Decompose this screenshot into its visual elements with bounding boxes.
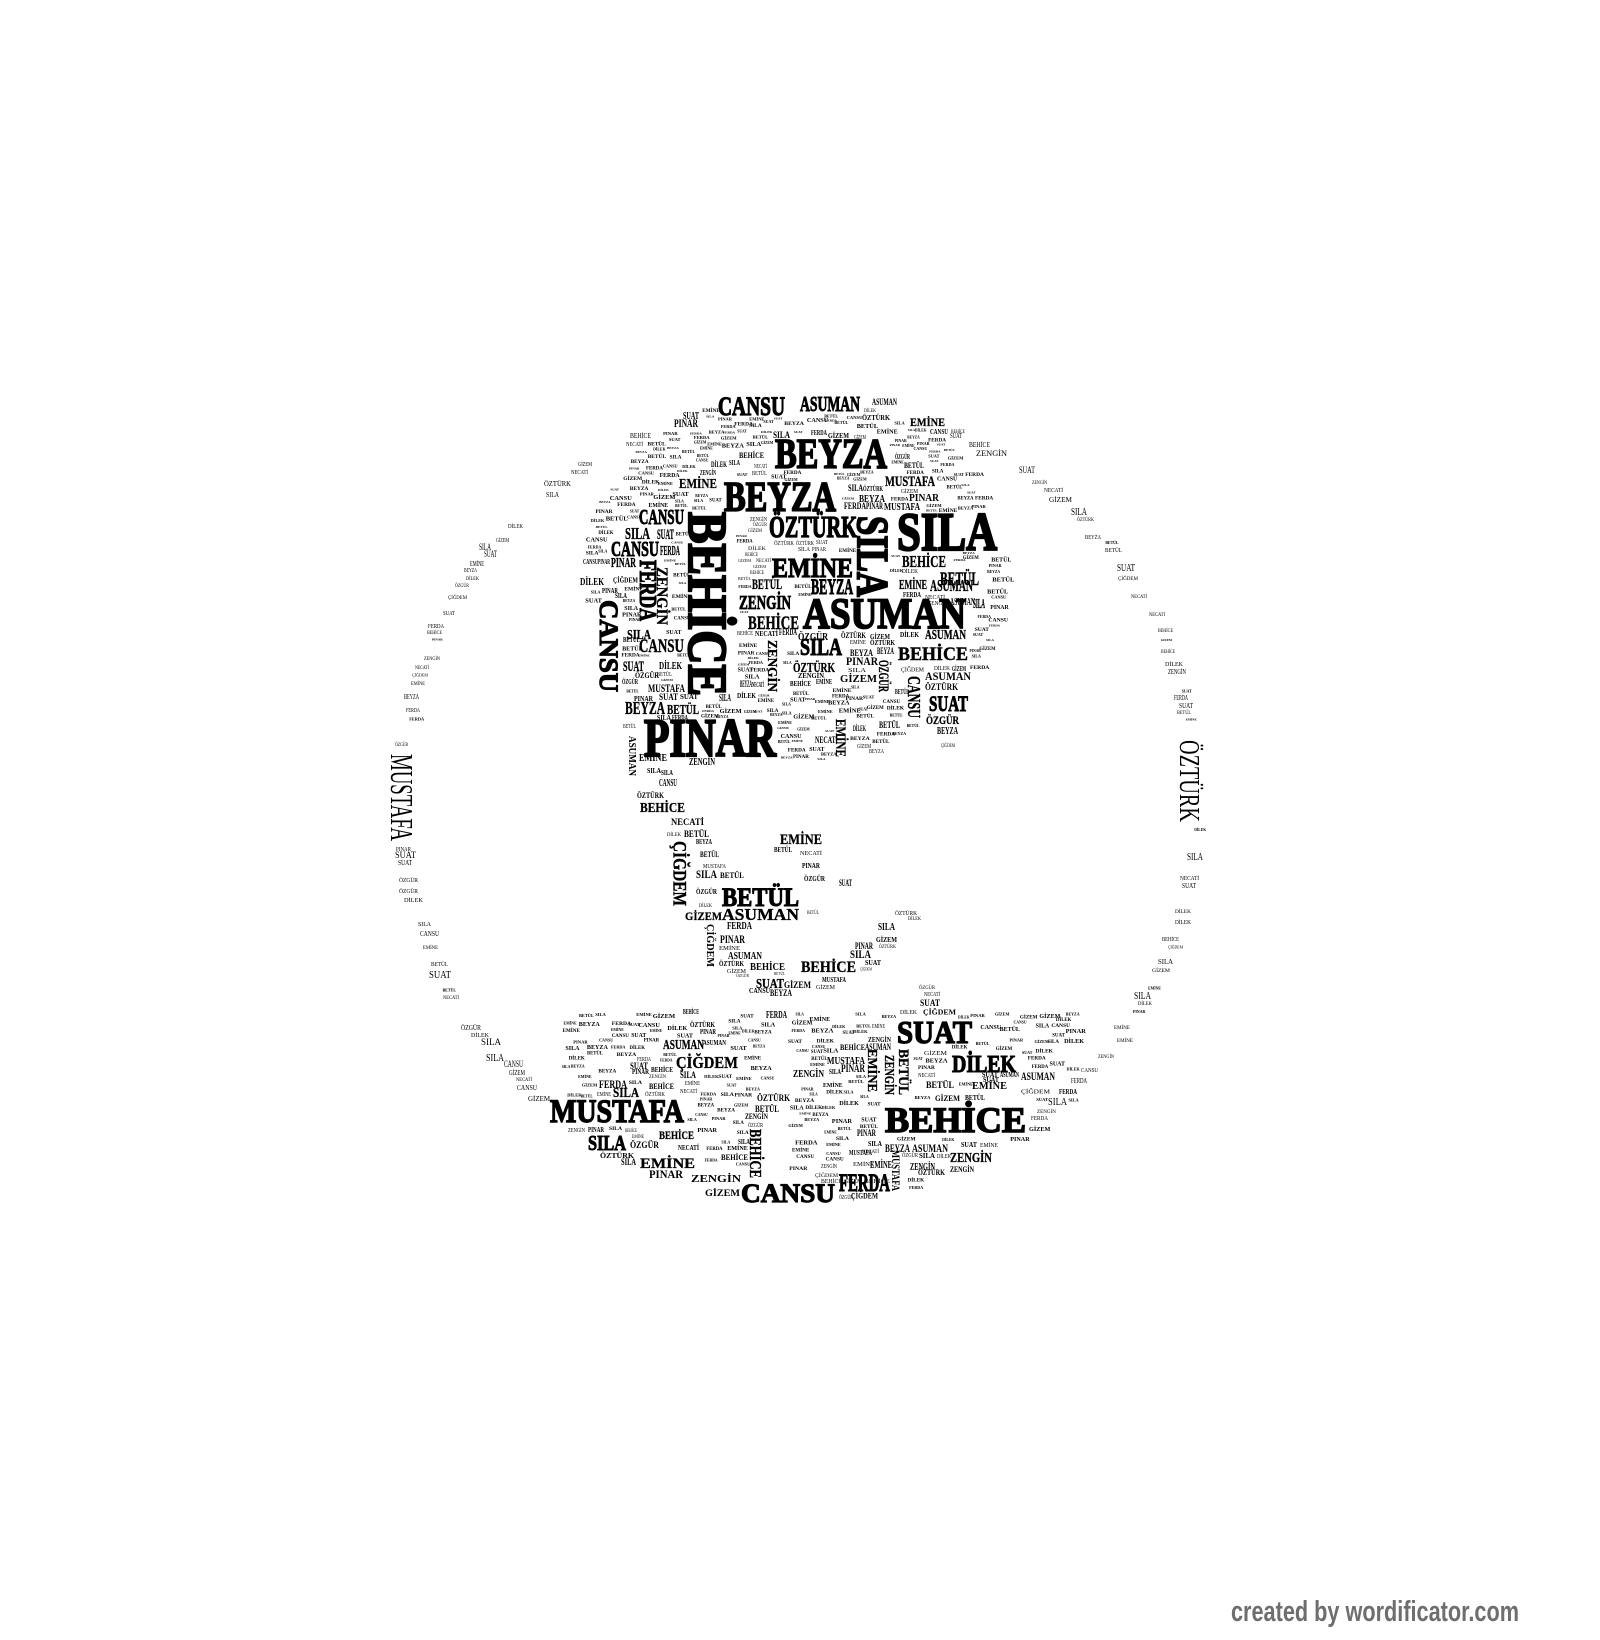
svg-text:SILA: SILA bbox=[844, 1090, 855, 1095]
svg-text:MUSTAFA: MUSTAFA bbox=[384, 754, 419, 841]
svg-text:ZENGİN: ZENGİN bbox=[950, 1150, 992, 1165]
svg-text:SILA: SILA bbox=[732, 1026, 743, 1031]
svg-text:SILA: SILA bbox=[680, 1070, 696, 1080]
svg-text:SUAT: SUAT bbox=[868, 1103, 882, 1108]
svg-text:BEYZA: BEYZA bbox=[885, 1141, 910, 1155]
svg-text:PINAR: PINAR bbox=[1133, 1010, 1146, 1014]
svg-text:SUAT: SUAT bbox=[920, 998, 940, 1008]
svg-text:ASUMAN: ASUMAN bbox=[626, 736, 637, 776]
svg-text:DİLEK: DİLEK bbox=[630, 1045, 646, 1051]
svg-text:FERDA: FERDA bbox=[721, 424, 737, 429]
svg-text:ÇİĞDEM: ÇİĞDEM bbox=[704, 924, 717, 967]
svg-text:BEYZA: BEYZA bbox=[754, 1031, 772, 1036]
svg-text:CANSU: CANSU bbox=[504, 1059, 523, 1069]
svg-text:CANSU: CANSU bbox=[1051, 1023, 1070, 1029]
svg-text:ÖZGÜR: ÖZGÜR bbox=[399, 877, 418, 884]
svg-text:FERDA: FERDA bbox=[660, 1059, 673, 1063]
svg-text:SUAT: SUAT bbox=[398, 858, 412, 867]
svg-text:DİLEK: DİLEK bbox=[805, 1104, 822, 1111]
svg-text:ÖZGÜR: ÖZGÜR bbox=[455, 583, 470, 589]
svg-text:BEYZA: BEYZA bbox=[869, 749, 885, 755]
svg-text:CANSU: CANSU bbox=[904, 676, 924, 718]
svg-text:CANSU: CANSU bbox=[586, 536, 608, 543]
svg-text:EMİNE: EMİNE bbox=[815, 699, 830, 704]
svg-text:FERDA: FERDA bbox=[792, 1029, 806, 1033]
svg-text:FERDA: FERDA bbox=[788, 748, 806, 754]
svg-text:DİLEK: DİLEK bbox=[839, 1100, 859, 1107]
svg-text:BETÜL: BETÜL bbox=[879, 718, 900, 731]
svg-text:SUAT: SUAT bbox=[1019, 465, 1035, 475]
svg-text:EMİNE: EMİNE bbox=[664, 557, 677, 562]
svg-text:SUAT: SUAT bbox=[1182, 881, 1196, 890]
svg-text:SILA: SILA bbox=[591, 589, 601, 594]
svg-text:DİLEK: DİLEK bbox=[667, 832, 682, 838]
svg-text:GİZEM: GİZEM bbox=[758, 692, 769, 697]
svg-text:ÖZTÜRK: ÖZTÜRK bbox=[841, 630, 866, 640]
svg-text:BETÜL: BETÜL bbox=[1105, 540, 1119, 545]
svg-text:DİLEK: DİLEK bbox=[1138, 1001, 1153, 1007]
svg-text:GİZEM: GİZEM bbox=[948, 455, 964, 460]
svg-text:EMİNE: EMİNE bbox=[1117, 1038, 1133, 1044]
svg-text:GİZEM: GİZEM bbox=[816, 984, 836, 991]
svg-text:CANSU: CANSU bbox=[639, 636, 684, 657]
svg-text:BETÜL: BETÜL bbox=[838, 1126, 852, 1131]
svg-text:CANSU: CANSU bbox=[826, 1151, 840, 1156]
svg-text:FERDA: FERDA bbox=[1071, 1076, 1087, 1085]
svg-text:PINAR: PINAR bbox=[663, 431, 678, 436]
svg-text:DİLEK: DİLEK bbox=[658, 487, 669, 492]
svg-text:SILA: SILA bbox=[790, 1105, 804, 1111]
svg-text:SILA: SILA bbox=[986, 638, 994, 642]
svg-text:SILA: SILA bbox=[855, 1012, 866, 1017]
svg-text:GİZEM: GİZEM bbox=[1161, 637, 1173, 642]
svg-text:BEYZA: BEYZA bbox=[781, 755, 793, 759]
svg-text:DİLEK: DİLEK bbox=[404, 897, 424, 904]
svg-text:ÖZTÜRK: ÖZTÜRK bbox=[757, 1091, 790, 1104]
svg-text:SUAT: SUAT bbox=[961, 1140, 977, 1149]
svg-text:SILA: SILA bbox=[800, 635, 843, 661]
svg-text:created by wordificator.com: created by wordificator.com bbox=[1231, 1596, 1519, 1628]
svg-text:SILA: SILA bbox=[848, 483, 863, 493]
svg-text:SILA: SILA bbox=[1071, 507, 1087, 518]
svg-text:GİZEM: GİZEM bbox=[653, 494, 675, 501]
svg-text:DİLEK: DİLEK bbox=[1175, 919, 1192, 926]
svg-text:BETÜL: BETÜL bbox=[774, 845, 792, 854]
svg-text:BEYZA: BEYZA bbox=[770, 988, 792, 998]
svg-text:EMİNE: EMİNE bbox=[632, 1134, 644, 1140]
svg-text:EMİNE: EMİNE bbox=[736, 1076, 752, 1081]
svg-text:GİZEM: GİZEM bbox=[748, 528, 763, 534]
svg-text:BEYZA: BEYZA bbox=[630, 486, 649, 492]
svg-text:SUAT: SUAT bbox=[738, 667, 754, 673]
svg-text:BETÜL: BETÜL bbox=[807, 910, 819, 916]
svg-text:BETÜL: BETÜL bbox=[700, 849, 719, 859]
svg-text:PINAR: PINAR bbox=[700, 1097, 713, 1101]
svg-text:EMİNE: EMİNE bbox=[810, 1062, 825, 1067]
svg-text:SILA: SILA bbox=[728, 1018, 740, 1024]
svg-text:EMİNE: EMİNE bbox=[1114, 1025, 1130, 1031]
svg-text:GİZEM: GİZEM bbox=[1152, 968, 1171, 974]
svg-text:FERDA: FERDA bbox=[779, 627, 797, 637]
svg-text:BEYZA: BEYZA bbox=[636, 450, 648, 454]
svg-text:DİLEK: DİLEK bbox=[591, 518, 605, 523]
svg-text:NECATİ: NECATİ bbox=[678, 1142, 699, 1152]
svg-text:GİZEM: GİZEM bbox=[528, 1094, 551, 1103]
svg-text:EMİNE: EMİNE bbox=[810, 1016, 831, 1023]
svg-text:ÖZTÜRK: ÖZTÜRK bbox=[769, 510, 857, 544]
svg-text:BEHİCE: BEHİCE bbox=[898, 644, 968, 665]
svg-text:SUAT: SUAT bbox=[897, 1015, 972, 1050]
svg-text:EMİNE: EMİNE bbox=[959, 1081, 973, 1086]
svg-text:BEYZA: BEYZA bbox=[795, 1098, 814, 1104]
svg-text:SILA: SILA bbox=[973, 596, 985, 611]
svg-text:BETÜL: BETÜL bbox=[992, 577, 1015, 584]
svg-text:FERDA: FERDA bbox=[723, 431, 736, 435]
svg-text:DİLEK: DİLEK bbox=[508, 523, 524, 530]
svg-text:BEHİCE: BEHİCE bbox=[640, 800, 685, 815]
svg-text:DİLEK: DİLEK bbox=[853, 1029, 868, 1034]
svg-text:CANSU: CANSU bbox=[796, 1154, 814, 1160]
svg-text:BETÜL: BETÜL bbox=[811, 715, 826, 720]
svg-text:CANSU: CANSU bbox=[583, 557, 598, 566]
svg-text:CANSU: CANSU bbox=[781, 734, 803, 740]
svg-text:ÖZGÜR: ÖZGÜR bbox=[399, 888, 418, 895]
svg-text:DİLEK: DİLEK bbox=[466, 576, 479, 582]
svg-text:EMİNE: EMİNE bbox=[636, 1012, 652, 1017]
svg-text:SILA: SILA bbox=[796, 1013, 805, 1017]
svg-text:GİZEM: GİZEM bbox=[685, 909, 723, 923]
svg-text:PINAR: PINAR bbox=[989, 563, 1002, 568]
svg-text:EMİNE: EMİNE bbox=[564, 1021, 578, 1026]
svg-text:GİZEM: GİZEM bbox=[721, 436, 737, 441]
svg-text:DİLEK: DİLEK bbox=[1175, 909, 1192, 915]
svg-text:BETÜL: BETÜL bbox=[720, 870, 744, 880]
svg-text:ZENGİN: ZENGİN bbox=[765, 640, 780, 692]
svg-text:ÖZGÜR: ÖZGÜR bbox=[753, 522, 768, 528]
svg-text:SILA: SILA bbox=[848, 516, 898, 597]
svg-text:DİLEK: DİLEK bbox=[826, 1089, 843, 1096]
svg-text:BETÜL: BETÜL bbox=[697, 453, 710, 458]
svg-text:PINAR: PINAR bbox=[970, 1013, 985, 1018]
svg-text:SILA: SILA bbox=[621, 1157, 636, 1167]
svg-text:BETÜL: BETÜL bbox=[811, 1056, 827, 1062]
svg-text:EMİNE: EMİNE bbox=[563, 1027, 581, 1034]
svg-text:SILA: SILA bbox=[961, 483, 970, 487]
svg-text:SUAT: SUAT bbox=[973, 632, 984, 637]
svg-text:SILA: SILA bbox=[729, 458, 740, 467]
svg-text:DİLEK: DİLEK bbox=[832, 1024, 846, 1029]
svg-text:BETÜL: BETÜL bbox=[794, 583, 812, 590]
svg-text:BETÜL: BETÜL bbox=[752, 576, 782, 593]
svg-text:FERDA: FERDA bbox=[727, 921, 752, 932]
svg-text:EMİNE: EMİNE bbox=[679, 476, 717, 491]
svg-text:EMİNE: EMİNE bbox=[833, 687, 852, 694]
svg-text:BETÜL: BETÜL bbox=[895, 687, 909, 696]
svg-text:BETÜL: BETÜL bbox=[944, 447, 956, 452]
svg-text:EMİNE: EMİNE bbox=[902, 443, 915, 448]
svg-text:ÖZGÜR: ÖZGÜR bbox=[736, 973, 750, 978]
svg-text:ÇİĞDEM: ÇİĞDEM bbox=[860, 966, 873, 971]
svg-text:ÇİĞDEM: ÇİĞDEM bbox=[448, 595, 468, 601]
svg-text:BEYZA: BEYZA bbox=[907, 435, 920, 439]
svg-text:BEHİCE: BEHİCE bbox=[750, 570, 764, 576]
svg-text:PINAR: PINAR bbox=[432, 638, 443, 642]
svg-text:EMİNE: EMİNE bbox=[778, 720, 792, 725]
svg-text:PINAR: PINAR bbox=[841, 1061, 865, 1075]
svg-text:PINAR: PINAR bbox=[832, 1118, 853, 1125]
svg-text:DİLEK: DİLEK bbox=[817, 1038, 835, 1045]
svg-text:SUAT: SUAT bbox=[863, 694, 875, 699]
svg-text:BETÜL: BETÜL bbox=[976, 1041, 990, 1046]
svg-text:FERDA: FERDA bbox=[1059, 1087, 1077, 1096]
svg-text:NECATİ: NECATİ bbox=[924, 991, 940, 998]
svg-text:CANSU: CANSU bbox=[826, 1157, 844, 1163]
svg-text:BEYZA: BEYZA bbox=[722, 442, 744, 449]
svg-text:PINAR: PINAR bbox=[857, 1128, 876, 1138]
svg-text:EMİNE: EMİNE bbox=[823, 1082, 843, 1089]
svg-text:BEYZA: BEYZA bbox=[599, 500, 611, 504]
svg-text:ÇİĞDEM: ÇİĞDEM bbox=[815, 1171, 838, 1179]
svg-text:ÖZTÜRK: ÖZTÜRK bbox=[637, 790, 664, 800]
svg-text:DİLEK: DİLEK bbox=[569, 1056, 585, 1062]
svg-text:FERDA: FERDA bbox=[825, 419, 837, 423]
svg-text:ÖZGÜR: ÖZGÜR bbox=[926, 713, 959, 727]
svg-text:DİLEK: DİLEK bbox=[682, 464, 696, 469]
svg-text:DİLEK: DİLEK bbox=[580, 576, 604, 588]
svg-text:ÖZGÜR: ÖZGÜR bbox=[875, 660, 892, 692]
svg-text:DİLEK: DİLEK bbox=[653, 446, 666, 451]
svg-text:BEYZA: BEYZA bbox=[775, 432, 887, 478]
svg-text:GİZEM: GİZEM bbox=[797, 727, 810, 732]
svg-text:CANSU: CANSU bbox=[796, 1049, 809, 1053]
svg-text:SILA: SILA bbox=[706, 414, 715, 418]
svg-text:BEHİCE: BEHİCE bbox=[1161, 649, 1175, 655]
svg-text:SUAT: SUAT bbox=[709, 499, 722, 504]
svg-text:PINAR: PINAR bbox=[611, 555, 636, 570]
svg-text:SILA: SILA bbox=[1158, 957, 1174, 966]
svg-text:CANSU: CANSU bbox=[812, 1045, 826, 1049]
svg-text:BEYZA: BEYZA bbox=[957, 497, 974, 502]
svg-text:PINAR: PINAR bbox=[573, 1040, 588, 1045]
svg-text:BETÜL: BETÜL bbox=[1105, 547, 1122, 554]
svg-text:BEYZA: BEYZA bbox=[667, 446, 679, 450]
svg-text:BEHİCE: BEHİCE bbox=[737, 630, 753, 637]
svg-text:PINAR: PINAR bbox=[649, 1167, 683, 1181]
svg-text:SILA: SILA bbox=[721, 1141, 730, 1145]
svg-text:PINAR: PINAR bbox=[697, 1127, 717, 1134]
svg-text:MUSTAFA: MUSTAFA bbox=[550, 1094, 684, 1130]
svg-text:SILA: SILA bbox=[761, 1023, 776, 1029]
svg-text:BEYZA: BEYZA bbox=[1066, 1011, 1080, 1016]
svg-text:PINAR: PINAR bbox=[700, 1027, 716, 1036]
svg-text:PINAR: PINAR bbox=[738, 651, 755, 657]
svg-text:CANSU: CANSU bbox=[930, 427, 948, 436]
svg-text:GİZEM: GİZEM bbox=[761, 440, 774, 445]
svg-text:PINAR: PINAR bbox=[1010, 1038, 1025, 1043]
svg-text:DİLEK: DİLEK bbox=[1067, 1066, 1081, 1071]
svg-text:NECATİ: NECATİ bbox=[1044, 487, 1063, 494]
svg-text:GİZEM: GİZEM bbox=[792, 1019, 813, 1026]
svg-text:BETÜL: BETÜL bbox=[848, 1079, 864, 1084]
svg-text:GİZEM: GİZEM bbox=[840, 673, 877, 685]
svg-text:FERDA: FERDA bbox=[660, 473, 681, 479]
svg-text:SUAT: SUAT bbox=[1117, 563, 1135, 574]
svg-text:PINAR: PINAR bbox=[1066, 1028, 1087, 1035]
svg-text:GİZEM: GİZEM bbox=[1035, 1039, 1049, 1044]
svg-text:BEYZA: BEYZA bbox=[811, 1028, 833, 1035]
svg-text:BEHİCE: BEHİCE bbox=[745, 552, 758, 558]
svg-text:NECATİ: NECATİ bbox=[756, 558, 771, 564]
svg-text:BEYZA: BEYZA bbox=[804, 1117, 820, 1122]
svg-text:SUAT: SUAT bbox=[1036, 1097, 1048, 1102]
svg-text:GİZEM: GİZEM bbox=[734, 1102, 748, 1107]
svg-text:SILA: SILA bbox=[595, 1012, 606, 1017]
svg-text:ÖZTÜRK: ÖZTÜRK bbox=[719, 959, 744, 968]
svg-text:GİZEM: GİZEM bbox=[623, 475, 643, 482]
svg-text:EMİNE: EMİNE bbox=[758, 698, 774, 704]
svg-text:BETÜL: BETÜL bbox=[753, 435, 769, 440]
svg-text:BEHİCE: BEHİCE bbox=[630, 431, 651, 440]
svg-text:BETÜL: BETÜL bbox=[947, 484, 963, 490]
svg-text:PINAR: PINAR bbox=[720, 932, 745, 946]
svg-text:SUAT: SUAT bbox=[1179, 701, 1193, 710]
svg-text:EMİNE: EMİNE bbox=[744, 1056, 762, 1062]
svg-text:SILA: SILA bbox=[738, 1137, 750, 1146]
svg-text:NECATİ: NECATİ bbox=[754, 463, 767, 470]
svg-text:FERDA: FERDA bbox=[940, 462, 954, 467]
svg-text:NECATİ: NECATİ bbox=[571, 469, 588, 476]
svg-text:SILA: SILA bbox=[721, 1092, 735, 1098]
svg-text:BEYZA: BEYZA bbox=[464, 568, 477, 574]
svg-text:CANSU: CANSU bbox=[980, 1025, 1001, 1031]
svg-text:DİLEK: DİLEK bbox=[900, 629, 919, 639]
svg-text:ZENGİN: ZENGİN bbox=[568, 1127, 585, 1134]
svg-text:FERDA: FERDA bbox=[1031, 1116, 1049, 1122]
svg-text:EMİNE: EMİNE bbox=[470, 559, 484, 568]
svg-text:GİZEM: GİZEM bbox=[578, 461, 592, 468]
svg-text:NECATİ: NECATİ bbox=[862, 1149, 879, 1155]
svg-text:BEYZA: BEYZA bbox=[598, 1069, 616, 1075]
svg-text:BETÜL: BETÜL bbox=[606, 516, 629, 523]
svg-text:NECATİ: NECATİ bbox=[443, 995, 459, 1001]
svg-text:FERDA: FERDA bbox=[409, 717, 425, 722]
svg-text:ÖZGÜR: ÖZGÜR bbox=[622, 677, 638, 686]
svg-text:ASUMAN: ASUMAN bbox=[663, 1037, 704, 1052]
svg-text:BETÜL: BETÜL bbox=[443, 988, 457, 993]
svg-text:BEYZA: BEYZA bbox=[751, 1066, 773, 1072]
svg-text:BEYZA: BEYZA bbox=[571, 1063, 585, 1068]
svg-text:MUSTAFA: MUSTAFA bbox=[885, 474, 935, 490]
svg-text:SUAT: SUAT bbox=[737, 429, 747, 433]
svg-text:ZENGİN: ZENGİN bbox=[1032, 480, 1047, 486]
svg-text:EMİNE: EMİNE bbox=[650, 1028, 663, 1033]
svg-text:FERDA: FERDA bbox=[970, 665, 989, 671]
svg-text:PINAR: PINAR bbox=[970, 649, 982, 653]
svg-text:SUAT: SUAT bbox=[1050, 1062, 1066, 1068]
svg-text:BETÜL: BETÜL bbox=[895, 1049, 912, 1095]
svg-text:SILA: SILA bbox=[687, 1117, 696, 1122]
svg-text:SILA: SILA bbox=[851, 686, 860, 690]
svg-text:GİZEM: GİZEM bbox=[788, 1123, 802, 1128]
svg-text:SILA: SILA bbox=[817, 757, 826, 761]
svg-text:GİZEM: GİZEM bbox=[496, 537, 509, 544]
svg-text:SILA: SILA bbox=[829, 1067, 841, 1076]
svg-text:PINAR: PINAR bbox=[866, 501, 883, 511]
svg-text:BEHİCE: BEHİCE bbox=[1162, 936, 1179, 943]
svg-text:BEHİCE: BEHİCE bbox=[885, 1100, 1026, 1140]
svg-text:SILA: SILA bbox=[598, 550, 607, 554]
svg-text:CANSU: CANSU bbox=[761, 1075, 775, 1080]
svg-text:SILA: SILA bbox=[972, 654, 981, 659]
svg-text:FERDA: FERDA bbox=[701, 1092, 718, 1097]
svg-text:FERDA: FERDA bbox=[1028, 1056, 1046, 1062]
svg-text:ZENGİN: ZENGİN bbox=[689, 756, 715, 768]
svg-text:PINAR: PINAR bbox=[918, 1065, 935, 1071]
svg-text:SILA: SILA bbox=[719, 693, 731, 704]
svg-text:ZENGİN: ZENGİN bbox=[1037, 1109, 1057, 1115]
svg-text:ÇİĞDEM: ÇİĞDEM bbox=[669, 841, 691, 906]
svg-text:DİLEK: DİLEK bbox=[598, 530, 613, 536]
svg-text:SUAT: SUAT bbox=[809, 747, 824, 753]
svg-text:DİLEK: DİLEK bbox=[853, 723, 866, 733]
svg-text:NECATİ: NECATİ bbox=[918, 1072, 935, 1079]
svg-text:SILA: SILA bbox=[746, 441, 761, 448]
svg-text:NECATİ: NECATİ bbox=[800, 850, 822, 857]
svg-text:ZENGİN: ZENGİN bbox=[424, 656, 440, 662]
svg-text:PINAR: PINAR bbox=[674, 416, 698, 430]
svg-text:ÇİĞDEM: ÇİĞDEM bbox=[1118, 576, 1139, 582]
svg-text:BEYZA: BEYZA bbox=[784, 421, 804, 427]
svg-text:SILA: SILA bbox=[749, 423, 762, 429]
svg-text:SILA: SILA bbox=[565, 1046, 580, 1052]
svg-text:CANSU: CANSU bbox=[991, 594, 1006, 599]
svg-text:SILA: SILA bbox=[1047, 1040, 1059, 1045]
svg-text:BEHİCE: BEHİCE bbox=[864, 1178, 890, 1185]
svg-text:BEYZA: BEYZA bbox=[877, 646, 894, 656]
svg-text:SUAT: SUAT bbox=[839, 878, 852, 888]
svg-text:CANSU: CANSU bbox=[937, 477, 958, 483]
svg-text:ÖZGÜR: ÖZGÜR bbox=[696, 887, 718, 896]
svg-text:EMİNE: EMİNE bbox=[872, 1023, 885, 1030]
svg-text:SUAT: SUAT bbox=[730, 1045, 747, 1052]
svg-text:PINAR: PINAR bbox=[793, 755, 809, 760]
svg-text:SILA: SILA bbox=[546, 490, 559, 499]
svg-text:SILA: SILA bbox=[486, 1053, 504, 1064]
svg-text:PINAR: PINAR bbox=[801, 1088, 814, 1092]
svg-text:BEYZA: BEYZA bbox=[709, 430, 725, 435]
svg-text:FERDA: FERDA bbox=[877, 732, 895, 738]
svg-text:EMİNE: EMİNE bbox=[870, 1159, 892, 1171]
svg-text:EMİNE: EMİNE bbox=[611, 1027, 624, 1032]
svg-text:BEYZA: BEYZA bbox=[882, 1014, 896, 1019]
svg-text:ASUMAN: ASUMAN bbox=[703, 1038, 726, 1047]
svg-text:ZENGİN: ZENGİN bbox=[649, 1074, 666, 1080]
svg-text:SUAT: SUAT bbox=[811, 1050, 824, 1055]
svg-text:CANSU: CANSU bbox=[1081, 1068, 1099, 1074]
svg-text:GİZEM: GİZEM bbox=[509, 1068, 525, 1077]
svg-text:BEYZA: BEYZA bbox=[631, 459, 649, 465]
svg-text:DİLEK: DİLEK bbox=[1056, 1017, 1072, 1023]
svg-text:EMİNE: EMİNE bbox=[824, 1130, 837, 1135]
svg-text:BETÜL: BETÜL bbox=[872, 738, 890, 745]
svg-text:BEHİCE: BEHİCE bbox=[651, 1064, 673, 1074]
svg-text:SILA: SILA bbox=[661, 768, 673, 777]
svg-text:CANSU: CANSU bbox=[696, 459, 709, 463]
svg-text:SUAT: SUAT bbox=[669, 437, 681, 442]
svg-text:SUAT: SUAT bbox=[443, 611, 455, 617]
svg-text:SUAT: SUAT bbox=[788, 1039, 802, 1045]
svg-text:ZENGİN: ZENGİN bbox=[1098, 1054, 1114, 1060]
